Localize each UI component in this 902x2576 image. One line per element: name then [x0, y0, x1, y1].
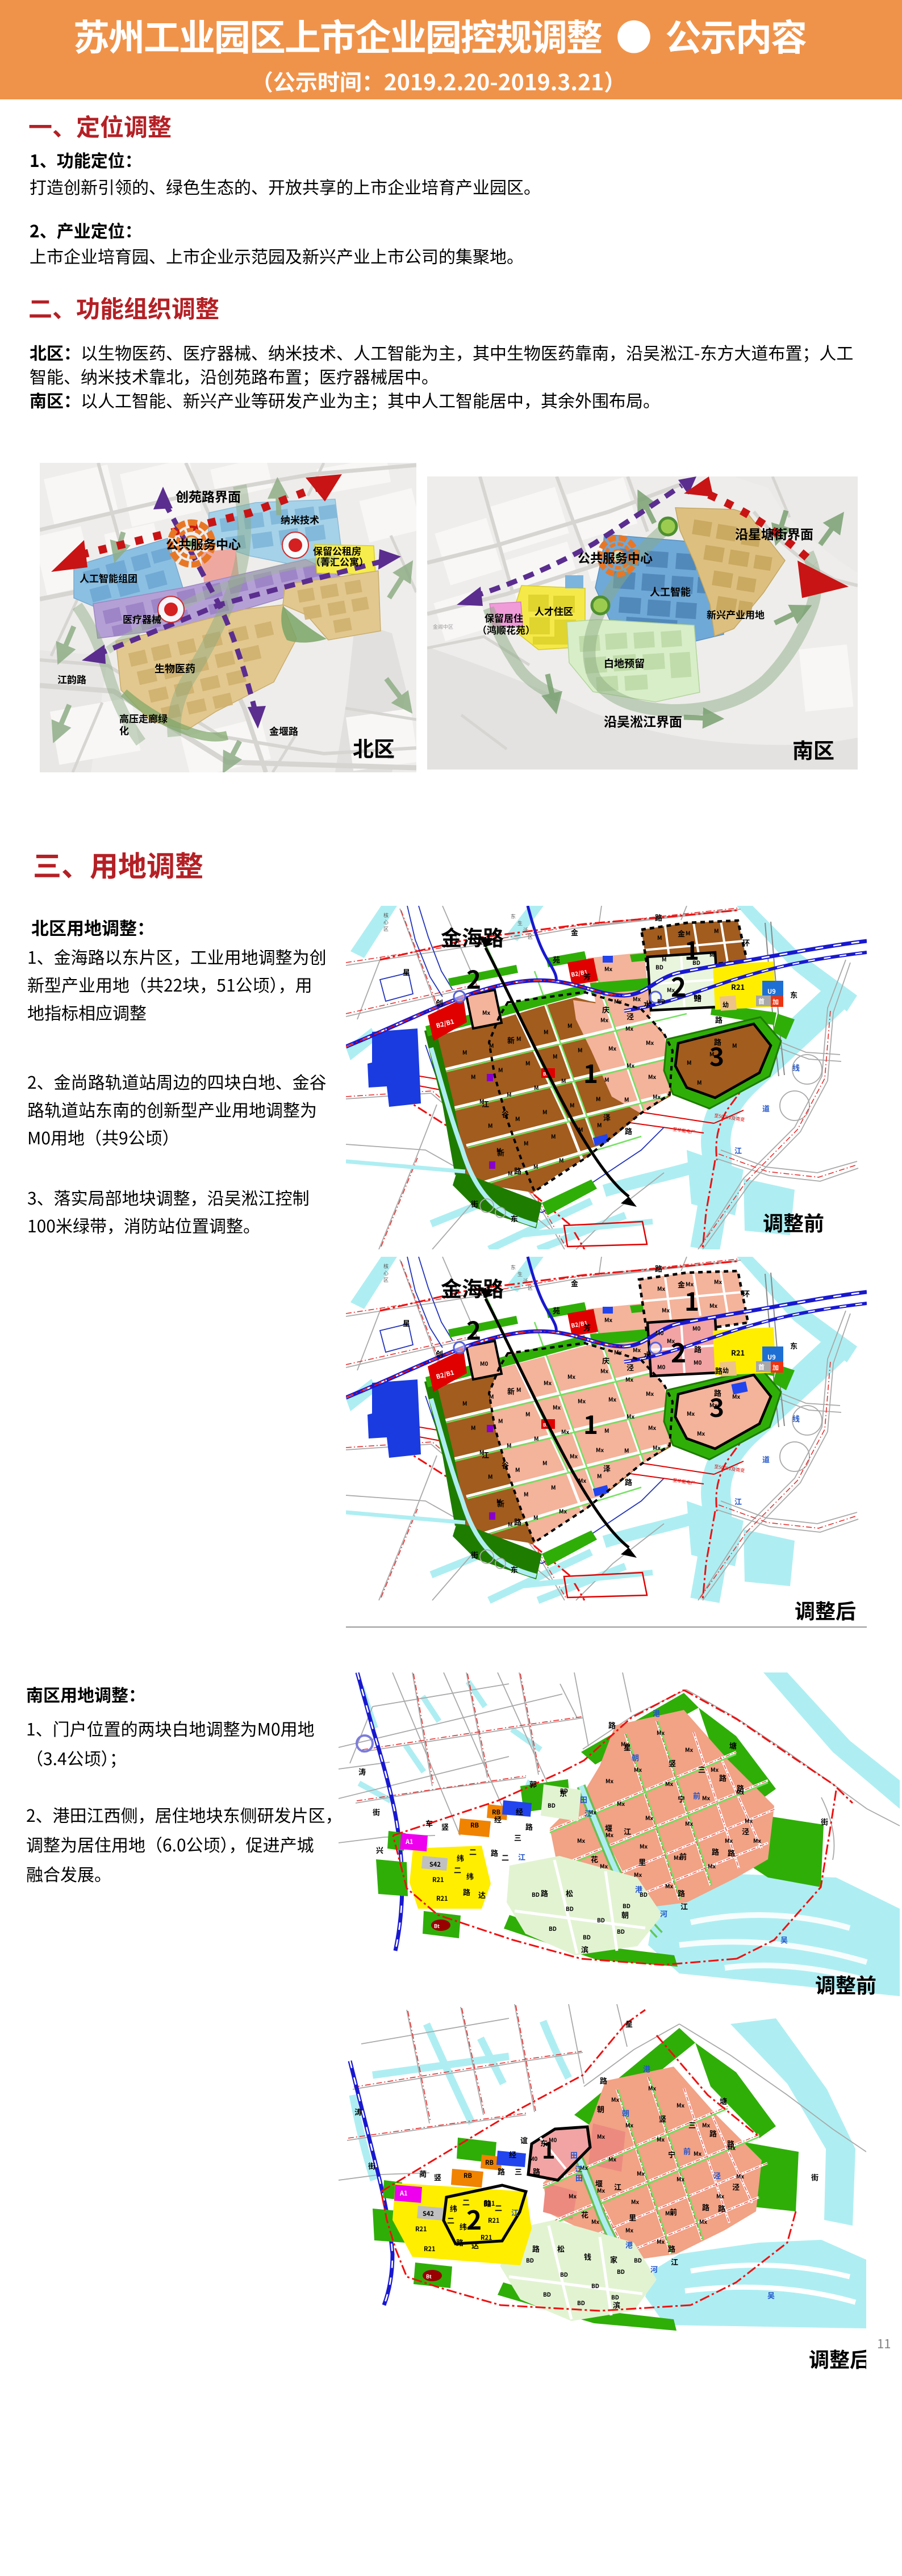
svg-text:路: 路	[655, 1263, 662, 1274]
svg-text:M: M	[515, 1465, 520, 1474]
svg-text:M: M	[570, 1101, 575, 1109]
svg-text:M: M	[551, 1483, 556, 1491]
svg-text:路: 路	[533, 2166, 540, 2177]
svg-text:M: M	[515, 1114, 520, 1123]
svg-text:Mx: Mx	[676, 2101, 685, 2109]
svg-text:Mx: Mx	[614, 1348, 623, 1356]
svg-text:路: 路	[655, 912, 662, 923]
svg-text:M: M	[553, 1052, 558, 1060]
svg-text:M: M	[534, 1434, 539, 1442]
svg-text:Mx: Mx	[702, 1793, 711, 1802]
svg-text:街: 街	[471, 1549, 478, 1560]
svg-text:江: 江	[624, 1826, 631, 1837]
svg-text:Mx: Mx	[634, 1870, 642, 1879]
svg-text:M0: M0	[655, 1328, 664, 1337]
svg-text:塘: 塘	[720, 2096, 727, 2106]
svg-text:前: 前	[679, 1851, 687, 1862]
svg-text:Mx: Mx	[625, 2121, 634, 2129]
svg-text:幼: 幼	[723, 1000, 729, 1009]
svg-text:泾: 泾	[742, 1826, 749, 1837]
svg-text:港: 港	[643, 2063, 650, 2074]
svg-text:Mx: Mx	[634, 1765, 642, 1774]
svg-text:新: 新	[507, 1035, 515, 1046]
svg-text:金: 金	[678, 1279, 685, 1290]
svg-text:田: 田	[575, 2172, 583, 2183]
svg-text:泾: 泾	[713, 2170, 721, 2181]
svg-text:Mx: Mx	[600, 1862, 608, 1870]
svg-text:朝: 朝	[597, 2104, 604, 2114]
svg-text:Mx: Mx	[709, 1301, 718, 1310]
svg-text:BD: BD	[577, 2298, 585, 2307]
svg-text:Mx: Mx	[604, 964, 613, 973]
svg-text:经: 经	[509, 2149, 516, 2160]
svg-text:M: M	[732, 1041, 737, 1049]
svg-text:谷: 谷	[502, 1460, 509, 1470]
svg-text:竖: 竖	[659, 2113, 666, 2124]
svg-text:M: M	[551, 1132, 556, 1140]
svg-text:Mx: Mx	[648, 1072, 657, 1081]
svg-text:河: 河	[650, 2264, 658, 2274]
svg-text:芳: 芳	[583, 1322, 591, 1333]
svg-text:田: 田	[570, 2150, 578, 2160]
svg-text:Mx: Mx	[570, 1452, 578, 1460]
svg-text:M: M	[709, 950, 715, 959]
svg-text:路: 路	[709, 2128, 717, 2139]
svg-text:Mx: Mx	[627, 1412, 635, 1420]
svg-text:幼: 幼	[723, 1366, 729, 1375]
svg-text:新兴产业用地: 新兴产业用地	[707, 607, 765, 621]
svg-text:Mx: Mx	[716, 2192, 725, 2200]
svg-text:Mx: Mx	[578, 1396, 586, 1405]
svg-text:苑: 苑	[553, 954, 560, 965]
svg-text:人工智能组团: 人工智能组团	[80, 571, 137, 585]
svg-text:BD: BD	[543, 2290, 551, 2298]
svg-text:线: 线	[792, 1413, 800, 1424]
svg-text:调整后: 调整后	[809, 2344, 866, 2373]
svg-text:Mx: Mx	[627, 1061, 635, 1069]
svg-text:东: 东	[511, 1213, 518, 1224]
svg-text:Mx: Mx	[611, 2095, 620, 2104]
svg-text:创苑路界面: 创苑路界面	[176, 486, 241, 505]
svg-text:沿星塘街界面: 沿星塘街界面	[735, 524, 813, 543]
svg-text:路: 路	[694, 1344, 701, 1354]
svg-text:公共服务中心: 公共服务中心	[166, 535, 241, 553]
svg-text:Bt: Bt	[426, 2273, 432, 2280]
svg-text:Mx: Mx	[694, 2149, 702, 2157]
svg-text:北区: 北区	[353, 732, 395, 763]
svg-text:涛: 涛	[354, 2106, 362, 2117]
svg-text:BD: BD	[617, 1927, 625, 1935]
svg-text:A1: A1	[399, 2189, 408, 2198]
svg-text:M: M	[597, 1471, 602, 1480]
svg-text:1: 1	[583, 1054, 598, 1090]
svg-text:M: M	[516, 1385, 521, 1394]
svg-text:BD: BD	[549, 1924, 557, 1933]
svg-text:BD: BD	[548, 1801, 556, 1809]
svg-text:滨: 滨	[581, 1944, 588, 1955]
svg-text:Mx: Mx	[640, 1842, 648, 1850]
svg-text:M0: M0	[692, 1324, 701, 1332]
svg-text:Mx: Mx	[646, 1038, 654, 1047]
svg-text:Mx: Mx	[745, 1816, 753, 1825]
svg-text:路: 路	[608, 1720, 616, 1730]
svg-text:M: M	[604, 1075, 609, 1084]
svg-text:路: 路	[694, 993, 701, 1003]
svg-text:Mx: Mx	[648, 2084, 657, 2092]
svg-text:星: 星	[625, 2018, 633, 2029]
svg-text:M: M	[516, 1034, 521, 1043]
svg-text:Mx: Mx	[567, 1372, 576, 1381]
svg-text:泽: 泽	[603, 1463, 611, 1474]
svg-text:车: 车	[425, 1818, 433, 1829]
svg-text:金阊中区: 金阊中区	[433, 623, 453, 630]
svg-text:区: 区	[383, 925, 389, 932]
svg-text:水: 水	[644, 1349, 651, 1360]
svg-text:竖: 竖	[669, 1758, 676, 1768]
svg-text:M: M	[525, 1059, 531, 1067]
svg-text:M: M	[471, 1072, 476, 1081]
svg-text:M: M	[578, 1046, 583, 1054]
svg-text:Mx: Mx	[665, 1881, 674, 1890]
svg-text:M: M	[525, 1410, 531, 1418]
svg-text:路: 路	[678, 1888, 685, 1898]
svg-text:江: 江	[482, 1098, 489, 1109]
svg-text:路: 路	[625, 1477, 632, 1487]
svg-text:Mx: Mx	[725, 1836, 733, 1845]
svg-text:BD: BD	[617, 2267, 625, 2276]
svg-text:江: 江	[511, 2207, 519, 2218]
svg-text:1: 1	[583, 1405, 598, 1441]
svg-text:M: M	[657, 933, 662, 942]
svg-text:路: 路	[525, 1821, 533, 1832]
svg-text:江: 江	[614, 2181, 621, 2192]
svg-text:A1: A1	[405, 1837, 414, 1846]
svg-text:Mx: Mx	[577, 1836, 586, 1845]
svg-text:竖: 竖	[441, 1821, 449, 1832]
svg-text:钱: 钱	[584, 2251, 591, 2262]
svg-text:1: 1	[684, 1282, 699, 1318]
svg-text:M: M	[507, 1441, 512, 1449]
svg-text:调整前: 调整前	[815, 1969, 876, 1996]
svg-text:M: M	[488, 1472, 493, 1481]
svg-text:路: 路	[715, 1365, 723, 1376]
svg-text:三: 三	[514, 1832, 521, 1843]
svg-text:Mx: Mx	[569, 2192, 577, 2200]
svg-text:三: 三	[688, 2119, 696, 2130]
svg-text:2: 2	[671, 1333, 686, 1370]
svg-text:达: 达	[478, 1889, 486, 1900]
svg-text:东: 东	[511, 913, 516, 920]
svg-text:江韵路: 江韵路	[57, 672, 86, 686]
svg-text:M: M	[714, 926, 719, 935]
svg-text:河: 河	[660, 1908, 667, 1919]
svg-text:M: M	[624, 1095, 629, 1103]
svg-text:朝: 朝	[621, 1909, 629, 1920]
svg-text:2: 2	[466, 1311, 481, 1347]
svg-text:东: 东	[511, 1564, 518, 1575]
svg-text:纬: 纬	[450, 2203, 457, 2214]
svg-text:沿吴淞江界面: 沿吴淞江界面	[604, 711, 682, 730]
svg-text:M: M	[687, 1058, 692, 1067]
svg-text:路: 路	[715, 1014, 723, 1025]
svg-text:M: M	[524, 1139, 529, 1147]
svg-text:金堰路: 金堰路	[269, 724, 298, 738]
svg-text:谷: 谷	[502, 1109, 509, 1119]
svg-text:Mx: Mx	[657, 2237, 665, 2245]
svg-text:环: 环	[742, 1288, 750, 1299]
svg-text:（菁汇公寓）: （菁汇公寓）	[311, 554, 369, 568]
svg-text:Bt: Bt	[434, 1922, 440, 1930]
svg-text:M: M	[471, 1423, 476, 1432]
svg-text:吴: 吴	[767, 2290, 775, 2301]
svg-text:Mx: Mx	[608, 1395, 617, 1403]
svg-text:环: 环	[742, 937, 750, 948]
svg-text:江: 江	[671, 2256, 678, 2267]
svg-text:东: 东	[790, 1340, 797, 1351]
svg-text:创: 创	[436, 997, 443, 1008]
svg-text:Mx: Mx	[708, 1862, 716, 1870]
svg-text:Mx: Mx	[482, 1008, 491, 1017]
svg-text:M: M	[533, 1513, 538, 1521]
svg-text:港: 港	[635, 1884, 642, 1895]
svg-text:M: M	[662, 955, 667, 963]
svg-text:家: 家	[610, 2254, 617, 2265]
svg-text:BD: BD	[634, 2256, 642, 2264]
svg-text:二: 二	[469, 1846, 477, 1857]
svg-text:二: 二	[454, 1864, 461, 1875]
svg-text:花: 花	[581, 2209, 588, 2220]
svg-text:Mx: Mx	[653, 1092, 661, 1101]
svg-text:路: 路	[532, 2243, 540, 2254]
svg-text:Mx: Mx	[736, 2172, 745, 2180]
svg-text:Mx: Mx	[697, 1429, 705, 1437]
svg-text:朝: 朝	[622, 2107, 629, 2118]
svg-text:Mx: Mx	[559, 1507, 567, 1515]
svg-text:路: 路	[714, 1387, 721, 1398]
svg-text:M: M	[542, 1107, 548, 1116]
svg-text:塘: 塘	[729, 1740, 737, 1751]
svg-text:M: M	[697, 1078, 702, 1086]
svg-text:滨: 滨	[613, 2299, 620, 2310]
svg-text:Mx: Mx	[617, 1799, 625, 1808]
svg-text:Mx: Mx	[614, 997, 623, 1005]
svg-text:Mx: Mx	[597, 2132, 605, 2140]
svg-text:水: 水	[644, 998, 651, 1009]
svg-text:R21: R21	[424, 2244, 435, 2253]
svg-text:Mx: Mx	[662, 1306, 670, 1314]
svg-text:宁: 宁	[668, 2149, 675, 2160]
svg-text:加: 加	[772, 1363, 779, 1372]
svg-text:Mx: Mx	[753, 1836, 762, 1845]
svg-text:M0: M0	[694, 1358, 702, 1366]
svg-text:江: 江	[734, 1145, 742, 1156]
svg-text:Mx: Mx	[633, 994, 641, 1003]
svg-text:街: 街	[821, 1816, 828, 1827]
svg-text:江: 江	[734, 1496, 742, 1507]
svg-text:BD: BD	[597, 1916, 605, 1924]
svg-text:M: M	[624, 1446, 629, 1454]
svg-text:BD: BD	[657, 997, 665, 1005]
svg-text:兴: 兴	[376, 1845, 383, 1855]
svg-text:新: 新	[497, 1498, 504, 1509]
svg-text:M: M	[544, 1027, 549, 1036]
svg-text:Mx: Mx	[646, 1389, 654, 1398]
svg-text:Mx: Mx	[653, 1443, 661, 1452]
svg-text:田: 田	[580, 1794, 587, 1805]
svg-text:M: M	[498, 1065, 503, 1074]
svg-text:M: M	[507, 1090, 512, 1098]
svg-text:朝: 朝	[632, 1752, 639, 1763]
svg-text:Mx: Mx	[657, 1284, 666, 1293]
svg-text:R21: R21	[731, 1347, 745, 1358]
svg-text:R21: R21	[415, 2224, 427, 2234]
svg-text:泾: 泾	[627, 1362, 634, 1373]
svg-text:M: M	[542, 1458, 548, 1467]
svg-text:首: 首	[758, 1362, 765, 1371]
svg-text:三: 三	[698, 1764, 705, 1775]
svg-text:江: 江	[518, 1851, 525, 1862]
svg-text:郭: 郭	[529, 1779, 537, 1789]
svg-text:M: M	[489, 1392, 494, 1400]
svg-text:路: 路	[541, 1888, 548, 1898]
svg-text:Mx: Mx	[657, 1728, 665, 1737]
svg-text:BD: BD	[560, 2270, 568, 2278]
svg-text:BD: BD	[623, 1901, 630, 1910]
svg-text:生物医药: 生物医药	[154, 661, 195, 676]
svg-text:堰: 堰	[605, 1822, 612, 1833]
svg-text:公共服务中心: 公共服务中心	[578, 549, 653, 567]
svg-text:U9: U9	[767, 1353, 776, 1362]
svg-text:二: 二	[502, 1852, 509, 1863]
svg-text:R21: R21	[432, 1875, 444, 1884]
svg-text:纳米技术: 纳米技术	[281, 512, 319, 526]
svg-text:纬: 纬	[460, 2221, 467, 2232]
svg-text:R21: R21	[481, 2233, 492, 2242]
svg-text:Mx: Mx	[648, 1423, 657, 1432]
svg-text:M: M	[559, 1156, 564, 1164]
svg-text:人工智能: 人工智能	[650, 584, 691, 599]
svg-text:纬: 纬	[466, 1871, 474, 1881]
svg-text:Mx: Mx	[633, 1345, 641, 1354]
svg-text:星: 星	[403, 1318, 410, 1328]
svg-text:苑: 苑	[553, 1305, 560, 1316]
svg-text:江: 江	[482, 1449, 489, 1460]
svg-text:2: 2	[466, 960, 481, 996]
svg-text:三: 三	[515, 2166, 522, 2177]
svg-text:路: 路	[727, 2138, 734, 2149]
svg-text:M: M	[533, 1162, 538, 1170]
svg-text:M: M	[462, 1399, 467, 1407]
svg-text:泽: 泽	[603, 1112, 611, 1123]
svg-text:M: M	[462, 1048, 467, 1056]
svg-text:道: 道	[762, 1103, 770, 1114]
svg-text:BD: BD	[532, 1890, 540, 1898]
svg-text:路: 路	[712, 1846, 719, 1857]
svg-text:路: 路	[714, 1036, 721, 1047]
svg-text:M: M	[597, 1120, 602, 1129]
svg-text:M0: M0	[480, 1359, 488, 1368]
svg-text:新: 新	[497, 1147, 504, 1158]
svg-text:M: M	[561, 1076, 566, 1085]
svg-text:调整后: 调整后	[795, 1595, 856, 1625]
svg-text:谊: 谊	[520, 2135, 528, 2146]
svg-text:路: 路	[702, 2202, 709, 2213]
svg-text:白地预留: 白地预留	[604, 656, 645, 671]
svg-text:路: 路	[463, 1887, 470, 1897]
svg-text:金: 金	[571, 927, 578, 938]
svg-text:Mx: Mx	[732, 1392, 741, 1400]
svg-text:Mx: Mx	[687, 1409, 695, 1417]
svg-text:南区: 南区	[792, 734, 834, 764]
svg-text:M: M	[604, 1426, 609, 1435]
svg-text:Mx: Mx	[625, 2226, 634, 2234]
svg-text:路: 路	[456, 2237, 463, 2248]
svg-text:M: M	[498, 1416, 503, 1425]
svg-text:街: 街	[811, 2172, 819, 2182]
svg-text:M: M	[488, 1121, 493, 1130]
svg-text:道: 道	[762, 1454, 770, 1465]
svg-text:加: 加	[772, 997, 779, 1006]
svg-text:Mx: Mx	[604, 1315, 613, 1324]
svg-text:前: 前	[693, 1790, 700, 1801]
svg-text:BD: BD	[583, 1933, 591, 1941]
svg-text:蔺: 蔺	[419, 2168, 427, 2179]
svg-text:R21: R21	[436, 1894, 448, 1903]
svg-text:东: 东	[540, 2138, 548, 2148]
svg-text:宁: 宁	[678, 1793, 685, 1804]
svg-text:BD: BD	[526, 2256, 534, 2264]
svg-text:东: 东	[559, 1788, 567, 1799]
svg-text:Mx: Mx	[637, 2169, 645, 2177]
svg-text:路: 路	[728, 1847, 735, 1858]
svg-text:路: 路	[600, 2075, 607, 2086]
svg-text:S42: S42	[429, 1860, 441, 1869]
svg-text:R21: R21	[488, 2216, 499, 2225]
svg-text:竖: 竖	[434, 2172, 441, 2182]
svg-text:BD: BD	[591, 2281, 599, 2290]
svg-text:Mx: Mx	[608, 2155, 617, 2163]
svg-text:Mx: Mx	[625, 1024, 634, 1032]
svg-text:S42: S42	[423, 2209, 434, 2218]
svg-text:Mx: Mx	[657, 2135, 665, 2143]
svg-text:M: M	[567, 1021, 573, 1030]
svg-text:街: 街	[373, 1806, 380, 1817]
svg-text:路: 路	[719, 1772, 726, 1783]
svg-text:吴: 吴	[780, 1934, 788, 1945]
svg-text:Mx: Mx	[711, 1765, 719, 1774]
svg-text:Mx: Mx	[600, 1015, 609, 1024]
svg-text:M: M	[534, 1083, 539, 1092]
svg-text:二: 二	[447, 2215, 454, 2226]
svg-text:Mx: Mx	[699, 2217, 708, 2226]
svg-text:港: 港	[653, 1708, 660, 1718]
svg-text:医疗器械: 医疗器械	[123, 612, 161, 626]
svg-text:Mx: Mx	[645, 1813, 654, 1822]
svg-text:松: 松	[566, 1888, 573, 1898]
svg-text:Mx: Mx	[591, 2217, 600, 2226]
svg-text:生: 生	[517, 1270, 523, 1278]
svg-text:路: 路	[491, 1847, 498, 1858]
svg-text:纬: 纬	[457, 1852, 464, 1863]
svg-text:BD: BD	[655, 963, 663, 971]
svg-text:化: 化	[119, 723, 129, 737]
svg-text:BD: BD	[566, 1904, 574, 1913]
svg-text:新: 新	[507, 1386, 515, 1396]
svg-text:Mx: Mx	[685, 1745, 694, 1754]
svg-text:Mx: Mx	[685, 1819, 694, 1828]
svg-text:庆: 庆	[602, 1355, 609, 1366]
svg-text:2: 2	[671, 967, 686, 1005]
